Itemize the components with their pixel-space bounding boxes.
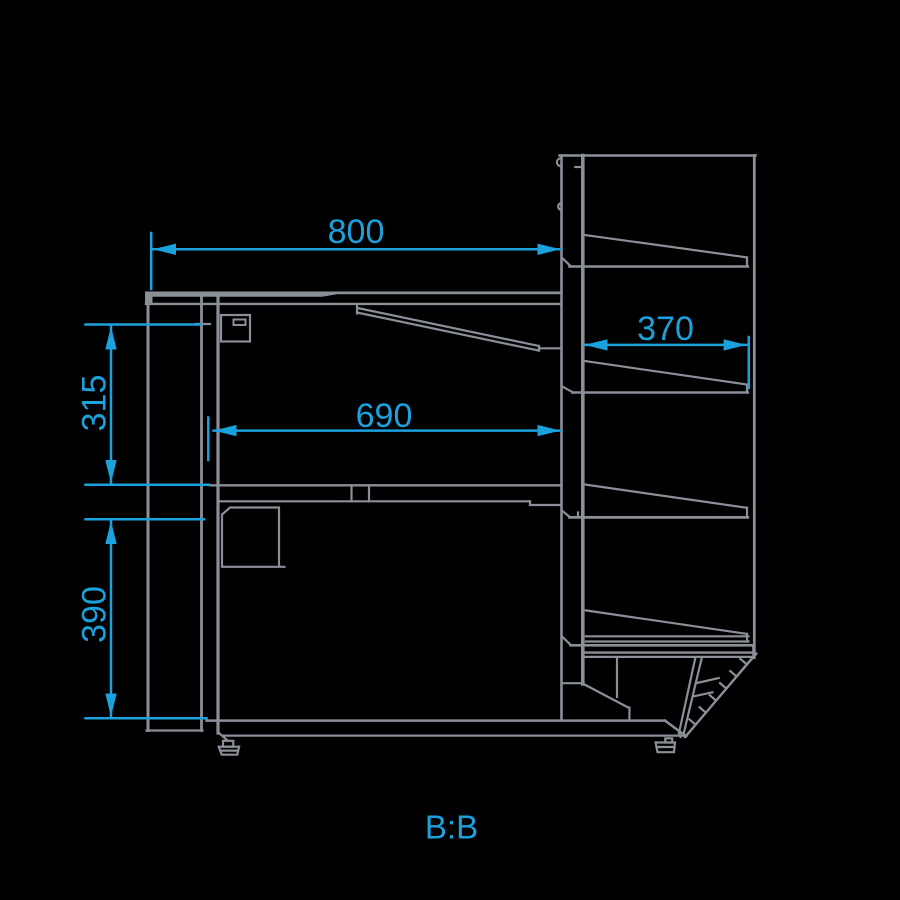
svg-text:370: 370 [637,310,694,348]
svg-text:B:B: B:B [425,809,478,846]
svg-text:390: 390 [76,586,114,643]
svg-text:800: 800 [328,213,385,251]
svg-text:690: 690 [356,397,413,435]
svg-text:315: 315 [76,375,114,432]
